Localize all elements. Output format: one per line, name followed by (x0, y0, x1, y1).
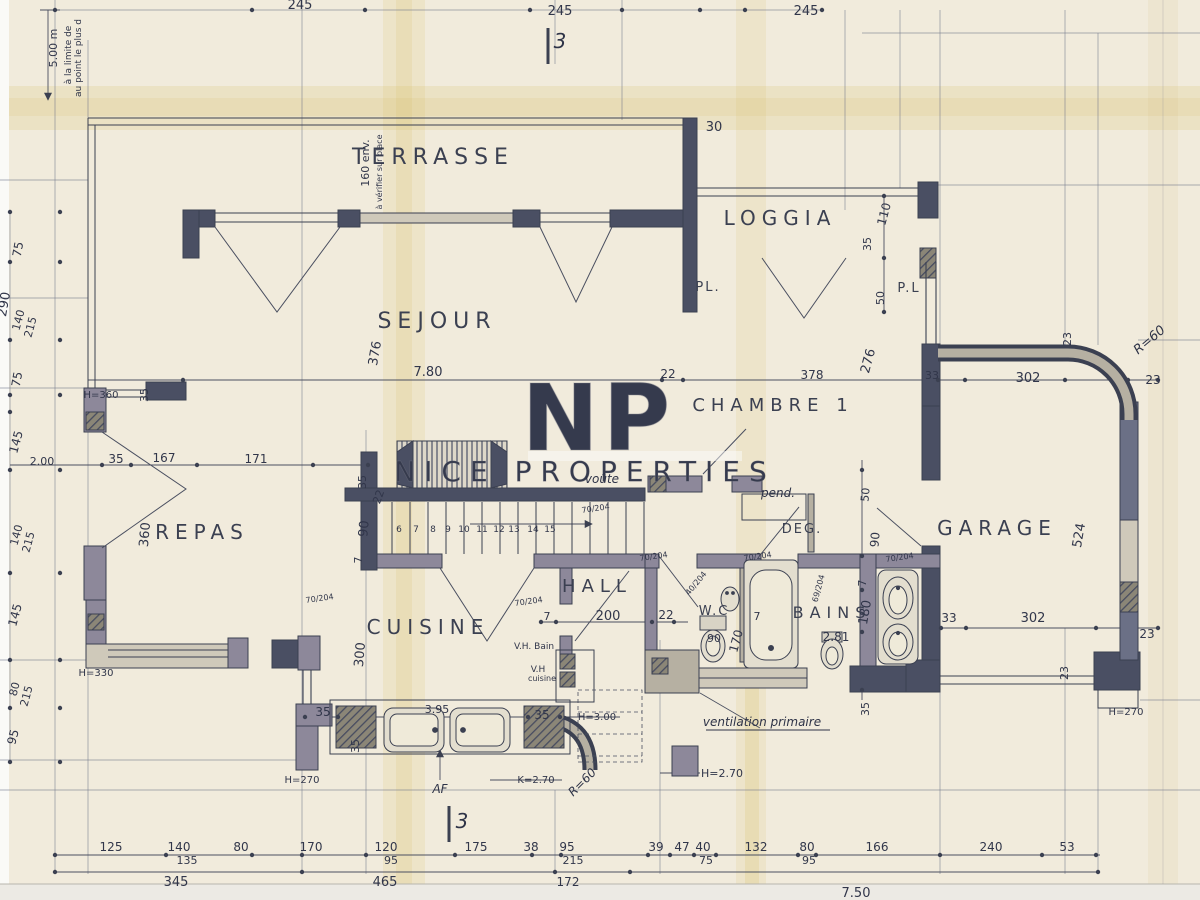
dim-tick (453, 853, 457, 857)
dim-tick (860, 688, 864, 692)
dim-tick (53, 853, 57, 857)
dim-tick (53, 870, 57, 874)
dim-tick (8, 571, 12, 575)
dim-tick (1063, 378, 1067, 382)
dim-tick (8, 338, 12, 342)
label-35-38: 35 (108, 452, 123, 466)
label-h-330-108: H=330 (79, 668, 114, 679)
dim-tick (554, 620, 558, 624)
label-465-135: 465 (373, 875, 398, 890)
label-69-204-82: 69/204 (811, 574, 827, 604)
dim-tick (938, 853, 942, 857)
dim-tick (363, 8, 367, 12)
label-125-113: 125 (100, 840, 123, 854)
label-95-130: 95 (802, 854, 816, 867)
dim-tick (336, 715, 340, 719)
label-h-360-29: H=360 (84, 390, 119, 401)
dim-tick (8, 468, 12, 472)
dim-tick (668, 853, 672, 857)
dim-tick (860, 588, 864, 592)
label-garage-61: GARAGE (937, 516, 1057, 540)
label-240-132: 240 (980, 840, 1003, 854)
dim-tick (303, 715, 307, 719)
label-80-116: 80 (233, 840, 248, 854)
dim-tick (100, 463, 104, 467)
label-2-81-87: 2.81 (823, 630, 850, 644)
label-sejour-17: SEJOUR (377, 309, 496, 334)
dim-tick (58, 393, 62, 397)
label-95-47: 95 (4, 728, 21, 746)
label-7-52: 7 (352, 557, 365, 564)
label-2-00-37: 2.00 (30, 455, 55, 468)
label-v-h-bain-96: V.H. Bain (514, 642, 554, 652)
dim-tick (8, 706, 12, 710)
dim-tick (311, 463, 315, 467)
label-5-00-m-0: 5.00 m (47, 29, 60, 68)
label-135-115: 135 (177, 854, 198, 867)
label-95-122: 95 (559, 840, 574, 854)
label-39-124: 39 (648, 840, 663, 854)
dim-tick (8, 210, 12, 214)
label-35-99: 35 (315, 705, 330, 719)
label-repas-48: REPAS (155, 520, 249, 544)
label-524-62: 524 (1070, 522, 1089, 549)
dim-tick (129, 463, 133, 467)
label-75-35: 75 (9, 371, 25, 388)
label-7-85: 7 (754, 610, 761, 623)
label-345-134: 345 (164, 875, 189, 890)
label-3-5: 3 (554, 29, 567, 53)
label-376-18: 376 (366, 340, 385, 367)
label-15-72: 15 (544, 525, 555, 535)
dim-tick (698, 8, 702, 12)
label-170-117: 170 (300, 840, 323, 854)
label-360-49: 360 (137, 522, 154, 548)
label-110-12: 110 (874, 201, 893, 227)
label-23-28: 23 (1145, 373, 1160, 387)
label-276-22: 276 (858, 347, 879, 375)
dim-tick (860, 630, 864, 634)
dim-tick (8, 658, 12, 662)
dim-tick (53, 8, 57, 12)
bathtub (744, 560, 798, 668)
label-vo-te-53: voûte (585, 472, 619, 486)
label-171-40: 171 (245, 452, 268, 466)
dim-tick (58, 658, 62, 662)
label-166-131: 166 (866, 840, 889, 854)
dim-tick (1096, 870, 1100, 874)
dim-tick (882, 256, 886, 260)
label-h-3-00-102: H=3.00 (578, 712, 616, 723)
dim-tick (195, 463, 199, 467)
dim-tick (882, 310, 886, 314)
label-378-21: 378 (801, 368, 824, 382)
label-132-128: 132 (745, 840, 768, 854)
label-140-114: 140 (168, 840, 191, 854)
label-95-119: 95 (384, 854, 398, 867)
label-pl-14: PL. (695, 280, 720, 295)
dim-tick (364, 853, 368, 857)
label-33-90: 33 (941, 611, 956, 625)
label-la-limite-de-1: à la limite de (64, 25, 74, 84)
dim-tick (882, 194, 886, 198)
dim-tick (300, 870, 304, 874)
label-12-69: 12 (493, 525, 504, 535)
dim-tick (526, 715, 530, 719)
label-ventilation-primaire-109: ventilation primaire (703, 715, 821, 729)
label-70-204-75: 70/204 (514, 595, 543, 608)
dim-tick (58, 468, 62, 472)
label-75-31: 75 (10, 241, 26, 258)
label-af-106: AF (431, 782, 448, 796)
label-35-41: 35 (356, 475, 369, 489)
dim-tick (628, 870, 632, 874)
label-47-125: 47 (674, 840, 689, 854)
label-35-30: 35 (138, 388, 151, 402)
label-23-92: 23 (1139, 627, 1154, 641)
label-7-50-137: 7.50 (842, 886, 871, 900)
dim-tick (558, 715, 562, 719)
label-7-64: 7 (413, 525, 419, 535)
double-washbasin (878, 570, 918, 664)
label-167-39: 167 (153, 451, 176, 465)
label-au-point-le-plus-d-2: au point le plus d (74, 19, 84, 97)
dim-tick (714, 853, 718, 857)
label-3-95-100: 3.95 (425, 703, 450, 716)
label-hall-73: HALL (562, 576, 632, 597)
label-w-c-79: W.C (699, 604, 730, 619)
label-290-32: 290 (0, 291, 14, 318)
label-245-3: 245 (288, 0, 313, 13)
dim-tick (58, 210, 62, 214)
dim-tick (743, 8, 747, 12)
label-13-70: 13 (508, 525, 519, 535)
label-7-76: 7 (544, 610, 551, 623)
dim-tick (250, 853, 254, 857)
label-53-133: 53 (1059, 840, 1074, 854)
label-90-51: 90 (356, 520, 372, 538)
dim-tick (681, 378, 685, 382)
label-6-63: 6 (396, 525, 402, 535)
dim-tick (58, 338, 62, 342)
label-k-2-70-105: K=2.70 (517, 775, 554, 786)
label-r-60-107: R=60 (565, 765, 599, 799)
dim-tick (58, 760, 62, 764)
label-h-270-112: H=270 (1109, 707, 1144, 718)
label-7-88: 7 (856, 580, 869, 587)
label-35-103: 35 (349, 739, 362, 753)
dim-tick (1094, 853, 1098, 857)
dim-tick (366, 463, 370, 467)
label-90-83: 90 (707, 632, 721, 645)
label-75-127: 75 (699, 854, 713, 867)
label-200-77: 200 (596, 609, 621, 624)
dim-tick (964, 626, 968, 630)
dim-tick (58, 706, 62, 710)
label-160-env-9: 160 env. (359, 139, 372, 186)
dim-tick (860, 468, 864, 472)
dim-tick (820, 8, 824, 12)
label-cuisine-94: CUISINE (367, 615, 490, 639)
label-35-13: 35 (861, 237, 874, 251)
dim-tick (1156, 626, 1160, 630)
watermark: NP NICE PROPERTIES (394, 365, 776, 488)
label-90-59: 90 (867, 531, 882, 547)
dim-tick (528, 8, 532, 12)
dim-tick (8, 760, 12, 764)
label-22-20: 22 (660, 367, 675, 381)
label-70-204-74: 70/204 (305, 592, 334, 605)
label-33-23: 33 (925, 369, 939, 382)
scanned-floor-plan-page: NP NICE PROPERTIES 5.00 mà la limite dea… (0, 0, 1200, 900)
dim-tick (620, 8, 624, 12)
label-14-71: 14 (527, 525, 539, 535)
label-7-80-19: 7.80 (414, 365, 443, 380)
label-deg-57: DEG. (782, 522, 822, 537)
dim-tick (250, 8, 254, 12)
dim-tick (58, 260, 62, 264)
label-cuisine-98: cuisine (528, 674, 556, 683)
label-50-58: 50 (858, 487, 872, 502)
label-120-118: 120 (375, 840, 398, 854)
label-80-129: 80 (799, 840, 814, 854)
label-70-204-54: 70/204 (581, 502, 610, 515)
label-302-91: 302 (1021, 611, 1046, 626)
label-215-123: 215 (563, 854, 584, 867)
label-3-138: 3 (456, 809, 469, 833)
label-172-136: 172 (557, 875, 580, 889)
label-35-101: 35 (534, 708, 549, 722)
dim-tick (8, 260, 12, 264)
dim-tick (939, 626, 943, 630)
dim-tick (650, 620, 654, 624)
label-245-4: 245 (548, 4, 573, 19)
label-22-78: 22 (658, 608, 673, 622)
label-300-95: 300 (352, 642, 369, 668)
label-chambre-1-24: CHAMBRE 1 (692, 395, 853, 416)
dim-tick (58, 571, 62, 575)
dim-tick (1094, 626, 1098, 630)
label-70-204-55: 70/204 (639, 550, 668, 563)
label-23-93: 23 (1058, 666, 1071, 680)
dim-tick (181, 378, 185, 382)
dim-tick (963, 378, 967, 382)
label-35-111: 35 (859, 702, 872, 716)
label-50-16: 50 (874, 291, 887, 305)
label-30-7: 30 (706, 120, 723, 135)
label-h-2-70-110: H=2.70 (701, 767, 743, 780)
label-p-l-15: P.L (897, 281, 920, 296)
label-175-120: 175 (465, 840, 488, 854)
dim-tick (8, 393, 12, 397)
dim-tick (1126, 378, 1130, 382)
label-40-204-80: 40/204 (684, 570, 709, 597)
dim-tick (8, 410, 12, 414)
label-40-126: 40 (695, 840, 710, 854)
dim-tick (1040, 853, 1044, 857)
label-pend-56: pend. (760, 486, 795, 500)
label-8-65: 8 (430, 525, 436, 535)
label-145-36: 145 (6, 429, 25, 455)
label-9-66: 9 (445, 525, 451, 535)
floor-plan-svg: NP NICE PROPERTIES 5.00 mà la limite dea… (0, 0, 1200, 900)
label-11-68: 11 (476, 525, 487, 535)
label-38-121: 38 (523, 840, 538, 854)
label-loggia-11: LOGGIA (724, 206, 837, 230)
label-302-27: 302 (1016, 371, 1041, 386)
label-23-25: 23 (1061, 332, 1074, 346)
label-245-6: 245 (794, 4, 819, 19)
label-v-rifier-sur-place-10: à vérifier sur place (374, 134, 384, 209)
dim-tick (553, 870, 557, 874)
label-10-67: 10 (458, 525, 470, 535)
dim-tick (860, 554, 864, 558)
label-h-270-104: H=270 (285, 775, 320, 786)
